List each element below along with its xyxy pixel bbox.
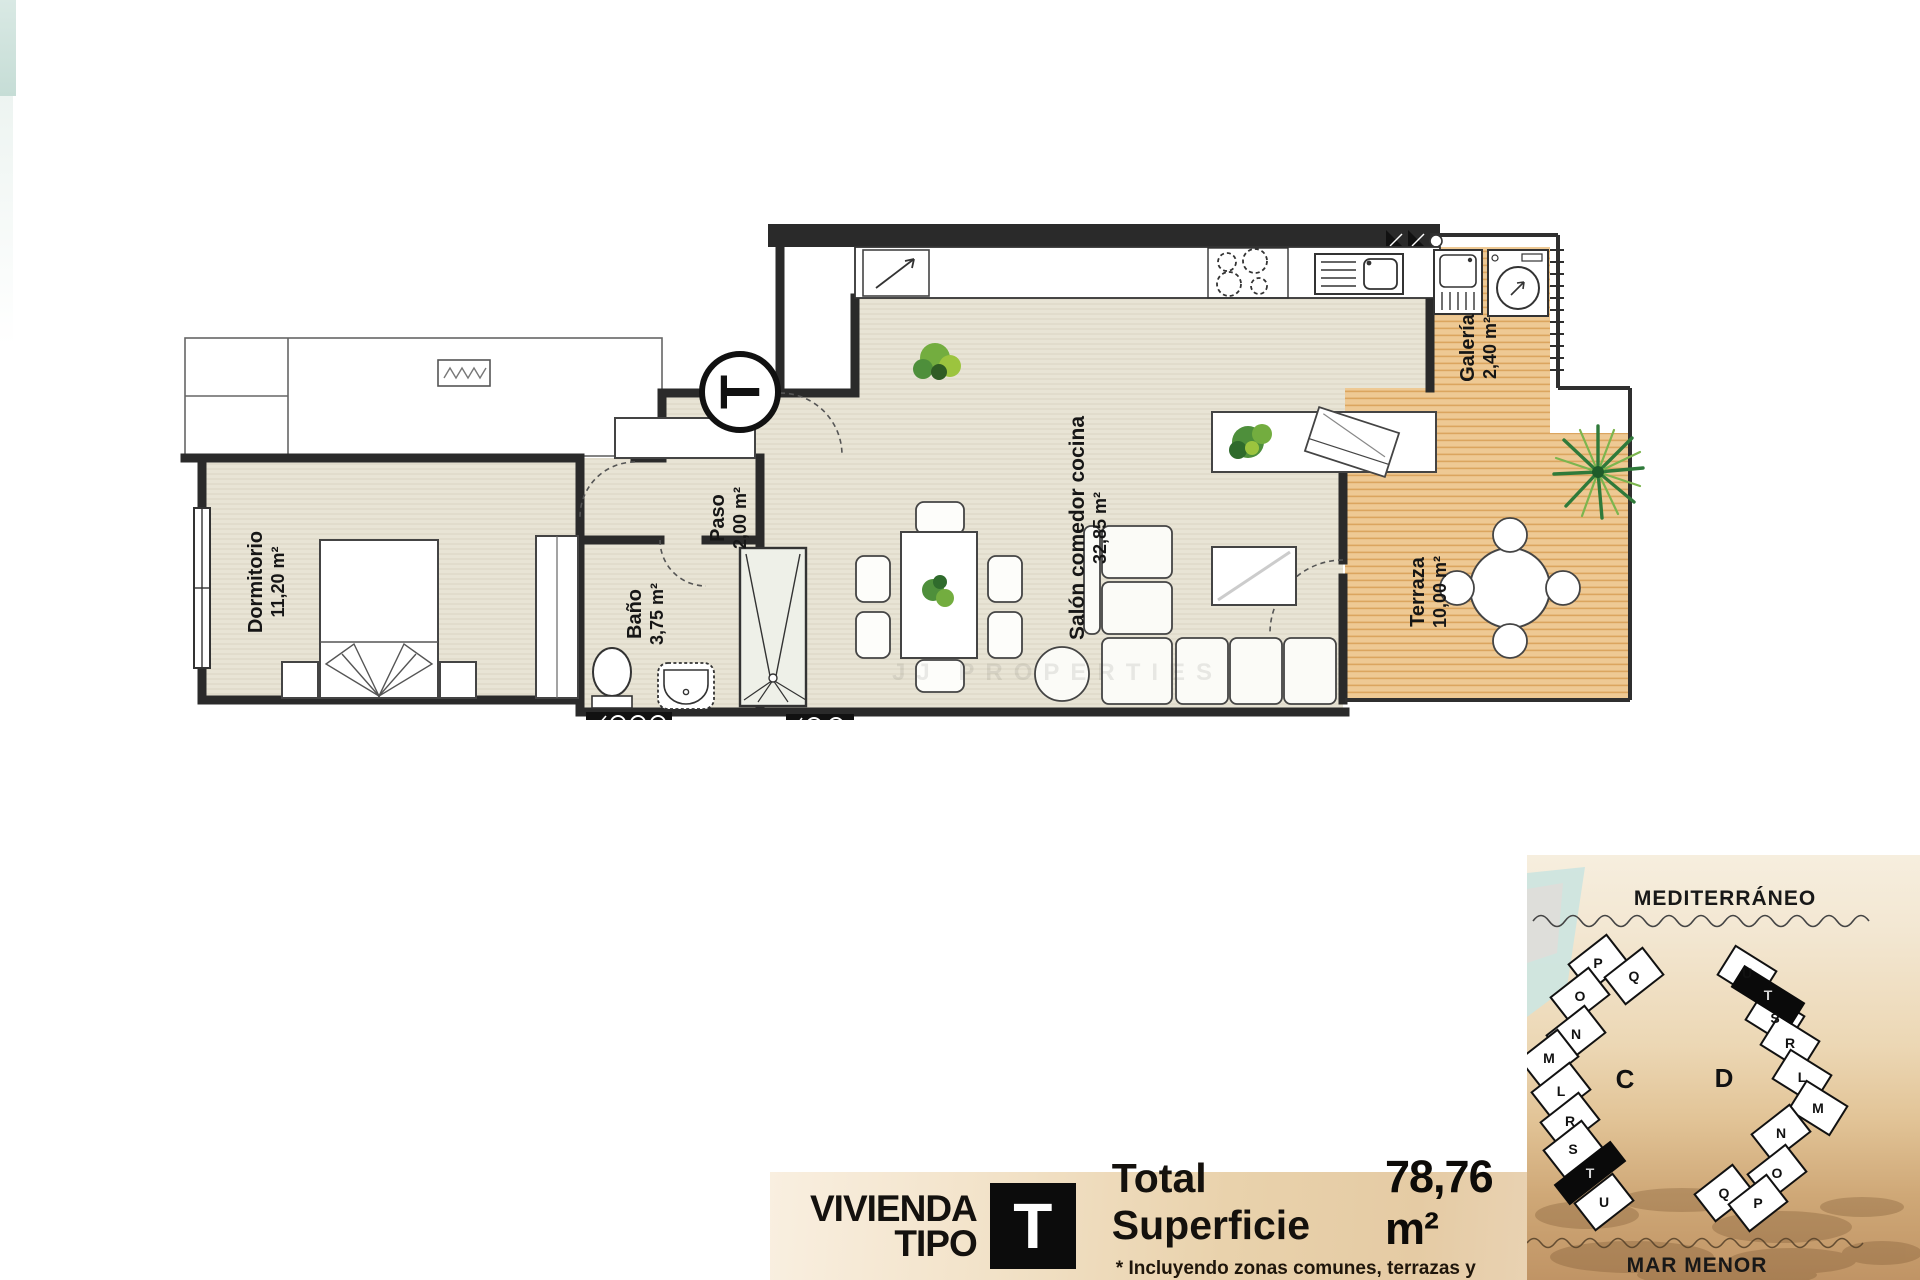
- terrace-chair: [1546, 571, 1580, 605]
- svg-text:3,75 m²: 3,75 m²: [647, 583, 667, 645]
- svg-text:P: P: [1753, 1195, 1762, 1211]
- svg-text:2,00 m²: 2,00 m²: [730, 487, 750, 549]
- bed: [320, 540, 438, 698]
- kitchen-sink-icon: [1315, 254, 1403, 294]
- svg-text:U: U: [1742, 965, 1752, 981]
- dining-chair: [988, 612, 1022, 658]
- svg-text:2,40 m²: 2,40 m²: [1480, 317, 1500, 379]
- total-surface-footnote: * Incluyendo zonas comunes, terrazas y g…: [1112, 1258, 1527, 1280]
- nightstand: [282, 662, 318, 698]
- total-surface-block: Total Superficie 78,76 m² * Incluyendo z…: [1112, 1151, 1527, 1280]
- kitchen-cabinet-icon: [863, 250, 929, 296]
- svg-text:Baño: Baño: [624, 589, 646, 639]
- svg-text:T: T: [1764, 987, 1773, 1003]
- toilet-icon: [593, 648, 631, 696]
- total-surface-label: Total Superficie: [1112, 1155, 1363, 1249]
- tv-sideboard: [1212, 407, 1436, 477]
- block-d-label: D: [1715, 1063, 1734, 1093]
- watermark: JJ PROPERTIES: [892, 659, 1223, 686]
- page-edge-color-strip: [0, 0, 16, 96]
- terrace-table: [1470, 548, 1550, 628]
- svg-text:M: M: [1812, 1100, 1824, 1116]
- svg-text:O: O: [1772, 1165, 1783, 1181]
- svg-text:11,20 m²: 11,20 m²: [268, 546, 288, 617]
- svg-text:S: S: [1568, 1141, 1577, 1157]
- svg-text:Galería: Galería: [1457, 313, 1479, 382]
- shower-icon: [740, 548, 806, 706]
- total-surface-value: 78,76 m²: [1385, 1151, 1527, 1255]
- room-label-terraza: Terraza 10,00 m²: [1407, 556, 1450, 628]
- dining-chair: [988, 556, 1022, 602]
- nightstand: [440, 662, 476, 698]
- terrace-chair: [1493, 518, 1527, 552]
- entrance-type-letter: T: [708, 375, 771, 409]
- lagoon-label: MAR MENOR: [1627, 1254, 1768, 1277]
- exterior-strip: [185, 338, 662, 456]
- sofa-seat: [1102, 582, 1172, 634]
- svg-text:32,85 m²: 32,85 m²: [1090, 492, 1110, 564]
- svg-text:L: L: [1798, 1069, 1807, 1085]
- room-label-paso: Paso 2,00 m²: [707, 487, 750, 549]
- bedroom-window: [194, 508, 210, 668]
- block-c-label: C: [1616, 1064, 1635, 1094]
- svg-text:R: R: [1785, 1035, 1795, 1051]
- sea-label: MEDITERRÁNEO: [1634, 887, 1816, 910]
- radiator-icon: [438, 360, 490, 386]
- svg-text:Q: Q: [1719, 1185, 1730, 1201]
- washing-machine-icon: [1488, 250, 1548, 316]
- room-label-bano: Baño 3,75 m²: [624, 583, 667, 645]
- dwelling-type-title: VIVIENDA TIPO: [810, 1191, 977, 1261]
- dining-chair: [916, 502, 964, 534]
- dining-chair: [856, 612, 890, 658]
- svg-text:Terraza: Terraza: [1407, 556, 1429, 627]
- svg-text:Paso: Paso: [707, 494, 729, 542]
- sofa-seat: [1284, 638, 1336, 704]
- dining-chair: [856, 556, 890, 602]
- room-label-galeria: Galería 2,40 m²: [1457, 313, 1500, 382]
- dwelling-label-line1: VIVIENDA: [810, 1191, 977, 1226]
- svg-text:10,00 m²: 10,00 m²: [1430, 556, 1450, 628]
- floor-plan-page: T: [0, 0, 1920, 1280]
- svg-text:N: N: [1571, 1026, 1581, 1042]
- site-map: MEDITERRÁNEO P Q O N M L R S: [1527, 855, 1920, 1280]
- galeria-sink-icon: [1434, 250, 1482, 314]
- svg-text:Dormitorio: Dormitorio: [245, 531, 267, 633]
- svg-text:L: L: [1557, 1083, 1566, 1099]
- kitchen-top-wall: [768, 224, 1440, 247]
- svg-text:M: M: [1543, 1050, 1555, 1066]
- svg-text:T: T: [1586, 1165, 1595, 1181]
- svg-text:R: R: [1565, 1113, 1575, 1129]
- type-banner: VIVIENDA TIPO T Total Superficie 78,76 m…: [770, 1172, 1527, 1280]
- terrace-chair: [1493, 624, 1527, 658]
- svg-text:S: S: [1770, 1010, 1779, 1026]
- svg-text:P: P: [1593, 955, 1602, 971]
- svg-text:N: N: [1776, 1125, 1786, 1141]
- type-letter-badge: T: [990, 1183, 1076, 1269]
- svg-text:Salón comedor cocina: Salón comedor cocina: [1066, 416, 1089, 640]
- sofa-seat: [1230, 638, 1282, 704]
- svg-text:U: U: [1599, 1194, 1609, 1210]
- kitchen: [855, 247, 1440, 298]
- svg-text:Q: Q: [1629, 968, 1640, 984]
- washbasin-icon: [658, 663, 714, 709]
- page-edge-color-strip-faint: [0, 96, 13, 346]
- sofa-seat: [1102, 526, 1172, 578]
- dwelling-label-line2: TIPO: [810, 1226, 977, 1261]
- entrance-type-marker: T: [702, 354, 778, 430]
- floor-plan: T: [140, 120, 1660, 720]
- svg-text:O: O: [1575, 988, 1586, 1004]
